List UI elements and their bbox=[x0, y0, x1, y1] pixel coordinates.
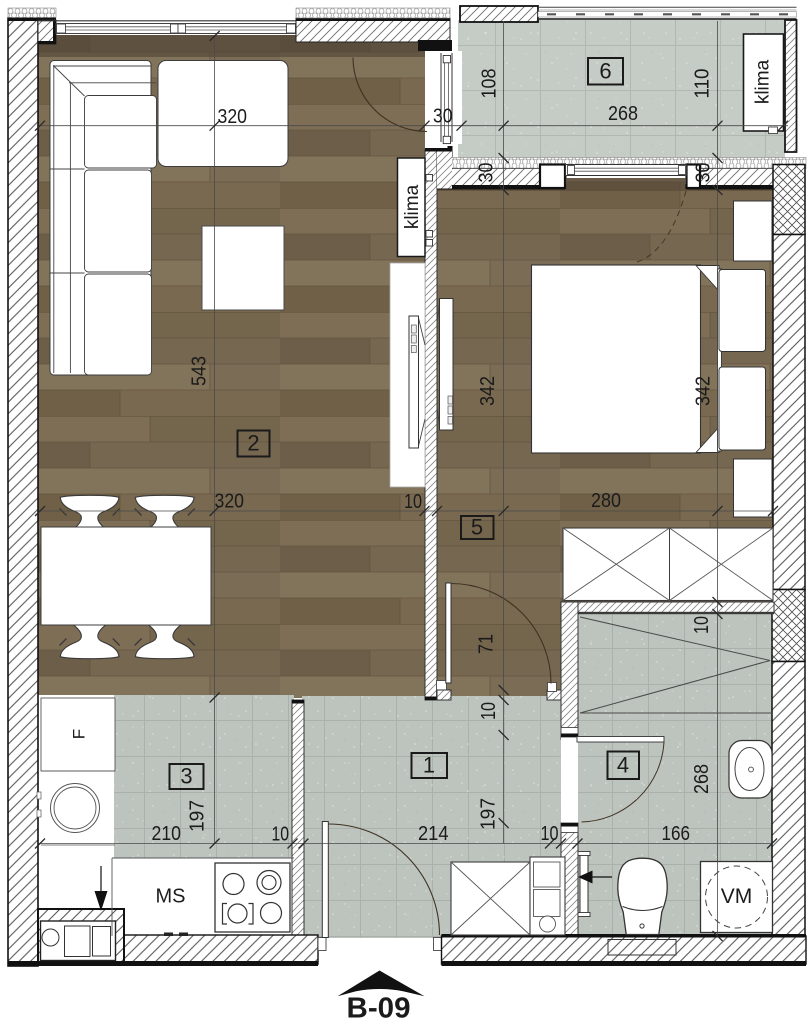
svg-text:268: 268 bbox=[608, 102, 638, 125]
svg-text:30: 30 bbox=[433, 105, 453, 128]
svg-text:197: 197 bbox=[186, 800, 209, 832]
svg-text:6: 6 bbox=[599, 58, 611, 83]
svg-text:10: 10 bbox=[477, 702, 500, 720]
svg-text:MS: MS bbox=[156, 885, 186, 908]
svg-text:10: 10 bbox=[404, 490, 422, 513]
svg-text:268: 268 bbox=[690, 764, 713, 794]
svg-text:B-09: B-09 bbox=[347, 993, 411, 1024]
svg-text:VM: VM bbox=[721, 885, 753, 908]
svg-text:543: 543 bbox=[188, 356, 211, 386]
svg-text:108: 108 bbox=[478, 69, 501, 99]
svg-text:10: 10 bbox=[272, 823, 290, 846]
svg-text:210: 210 bbox=[152, 822, 182, 845]
svg-text:71: 71 bbox=[475, 634, 498, 654]
svg-text:2: 2 bbox=[247, 430, 259, 455]
svg-text:F: F bbox=[69, 729, 88, 739]
svg-text:320: 320 bbox=[215, 490, 245, 513]
svg-text:4: 4 bbox=[617, 752, 629, 777]
svg-text:30: 30 bbox=[475, 163, 498, 183]
svg-text:5: 5 bbox=[471, 514, 483, 539]
svg-text:klima: klima bbox=[753, 59, 774, 104]
svg-text:1: 1 bbox=[423, 752, 435, 777]
svg-text:110: 110 bbox=[691, 69, 714, 99]
svg-text:197: 197 bbox=[477, 798, 500, 830]
svg-text:30: 30 bbox=[692, 163, 715, 183]
svg-text:10: 10 bbox=[541, 822, 559, 845]
svg-text:166: 166 bbox=[662, 822, 691, 845]
svg-text:320: 320 bbox=[218, 105, 248, 128]
svg-text:214: 214 bbox=[418, 822, 449, 845]
svg-text:10: 10 bbox=[690, 616, 713, 634]
svg-text:klima: klima bbox=[402, 184, 423, 229]
svg-text:280: 280 bbox=[591, 489, 621, 512]
svg-text:342: 342 bbox=[692, 376, 715, 406]
svg-text:3: 3 bbox=[180, 763, 192, 788]
svg-text:342: 342 bbox=[476, 376, 499, 406]
